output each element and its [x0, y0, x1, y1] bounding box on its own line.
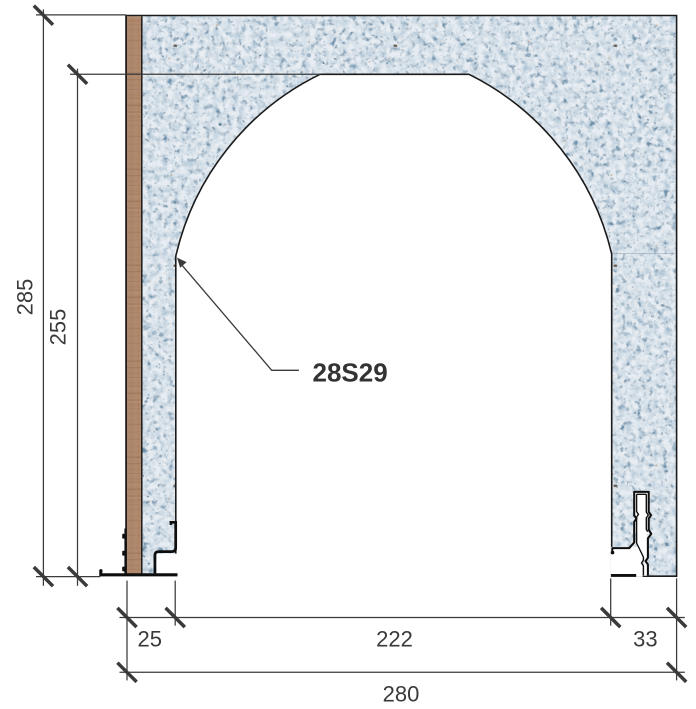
svg-text:255: 255 — [46, 309, 71, 346]
svg-text:285: 285 — [13, 279, 38, 316]
svg-text:222: 222 — [376, 627, 413, 652]
svg-text:280: 280 — [383, 682, 420, 707]
svg-text:25: 25 — [138, 627, 162, 652]
svg-text:28S29: 28S29 — [313, 358, 388, 388]
svg-text:33: 33 — [633, 627, 657, 652]
